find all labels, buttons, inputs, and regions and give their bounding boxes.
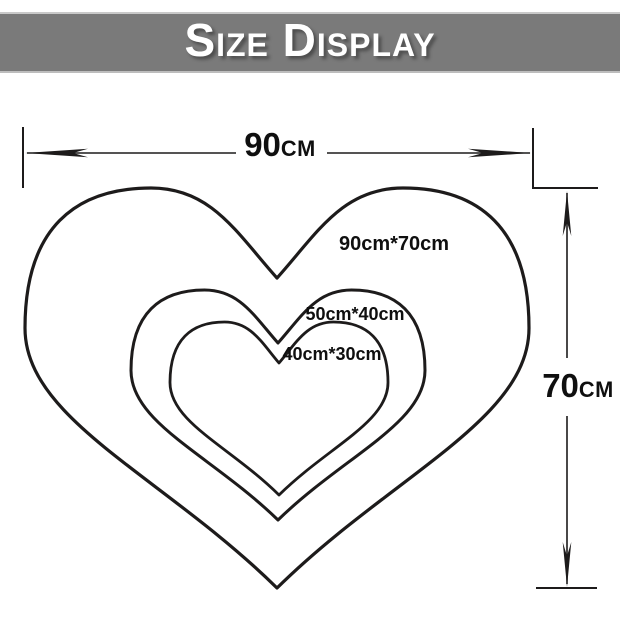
heart-size-label-large: 90cm*70cm [314,234,474,254]
height-dim-label: 70cm [528,369,620,402]
height-dim-value: 70 [542,367,579,404]
width-dim-corner-bracket [533,128,598,188]
width-dim-label: 90cm [180,128,380,161]
heart-size-label-medium: 50cm*40cm [275,305,435,323]
width-dim-value: 90 [244,126,281,163]
width-dim-unit: cm [281,136,316,161]
heart-size-label-small: 40cm*30cm [252,345,412,363]
height-dim-unit: cm [579,377,614,402]
